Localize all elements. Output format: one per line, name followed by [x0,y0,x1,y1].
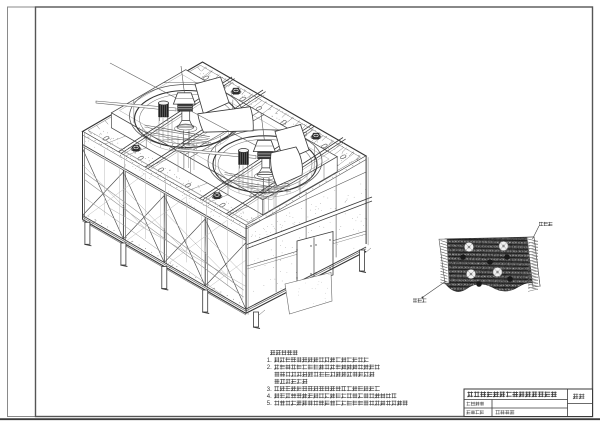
svg-text:4.: 4. [267,394,272,400]
svg-text:3.: 3. [267,387,272,393]
svg-text:5.: 5. [267,401,272,407]
svg-text:2.: 2. [267,365,272,371]
svg-text:1.: 1. [267,358,272,364]
